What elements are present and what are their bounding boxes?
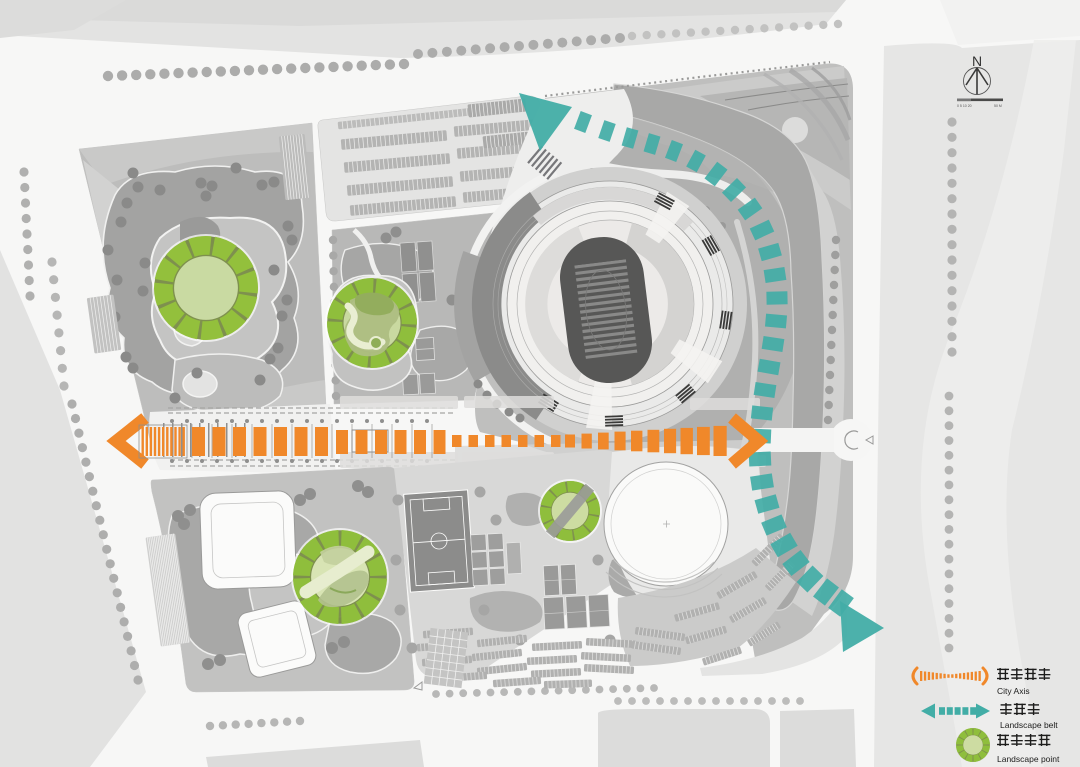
svg-text:City Axis: City Axis xyxy=(997,686,1030,696)
svg-text:N: N xyxy=(972,53,982,69)
svg-text:Landscape belt: Landscape belt xyxy=(1000,720,1058,730)
svg-text:50 M: 50 M xyxy=(994,104,1002,108)
svg-text:Landscape point: Landscape point xyxy=(997,754,1060,764)
svg-text:0 5 10 20: 0 5 10 20 xyxy=(957,104,972,108)
